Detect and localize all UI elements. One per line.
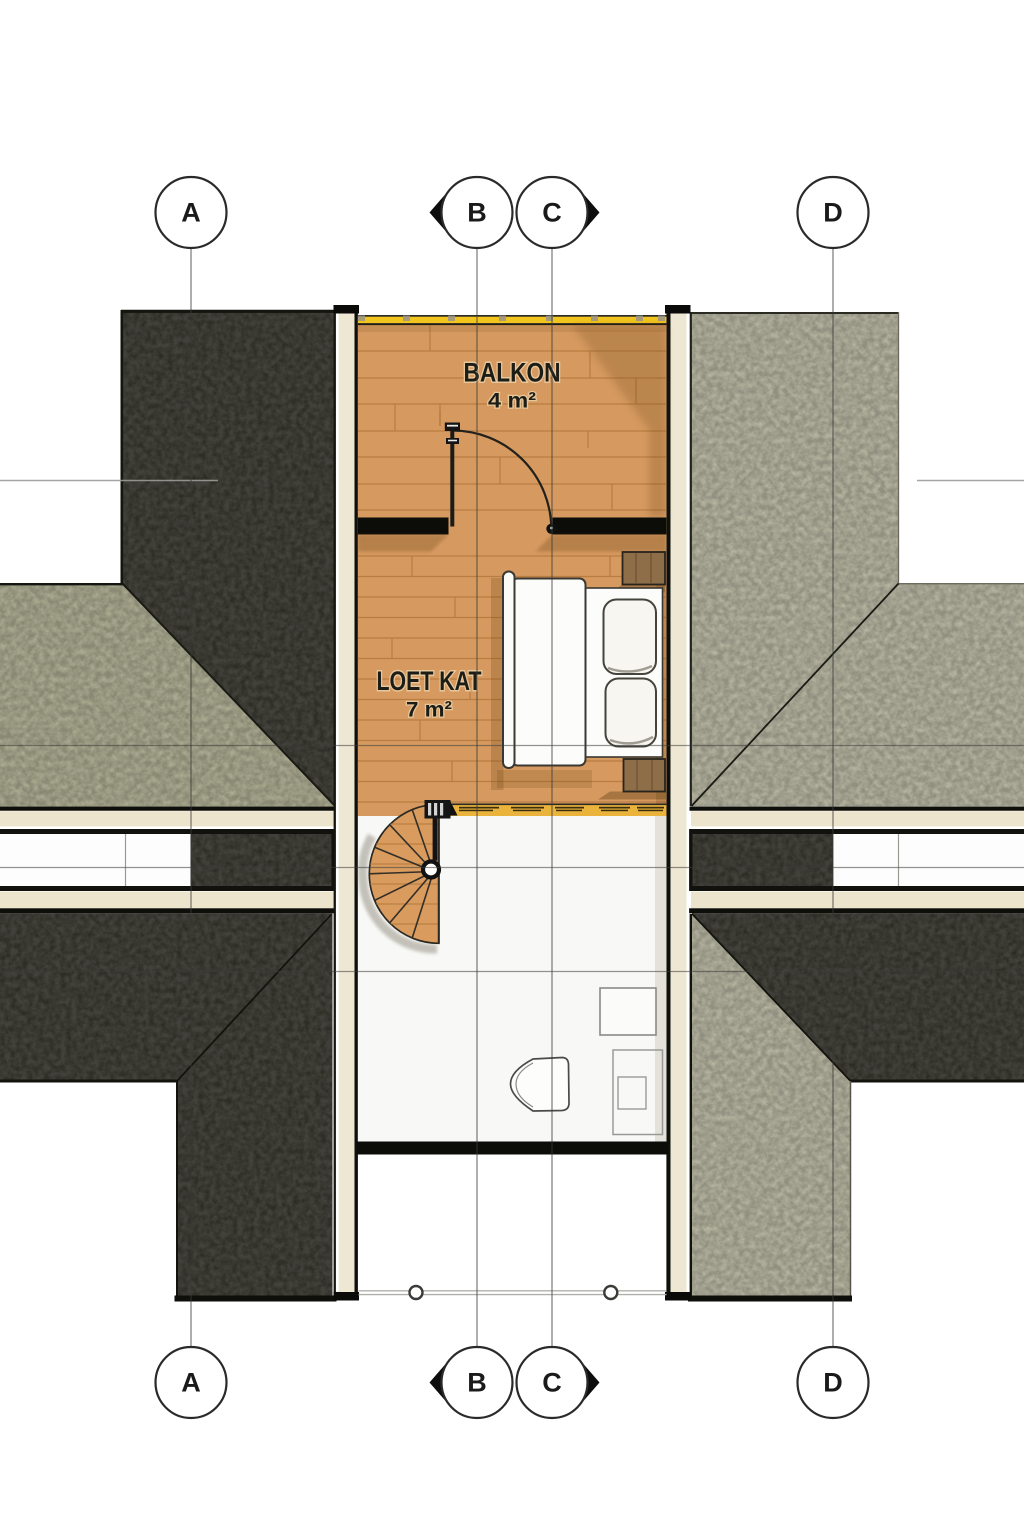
svg-text:D: D	[823, 1368, 843, 1398]
svg-text:A: A	[181, 198, 201, 228]
svg-text:A: A	[181, 1368, 201, 1398]
svg-text:C: C	[542, 198, 562, 228]
svg-text:4 m²: 4 m²	[488, 389, 536, 413]
svg-text:B: B	[467, 198, 487, 228]
svg-text:B: B	[467, 1368, 487, 1398]
svg-text:D: D	[823, 198, 843, 228]
svg-text:BALKON: BALKON	[464, 358, 561, 388]
svg-text:C: C	[542, 1368, 562, 1398]
svg-text:7 m²: 7 m²	[406, 698, 452, 722]
svg-text:LOET KAT: LOET KAT	[377, 666, 482, 696]
